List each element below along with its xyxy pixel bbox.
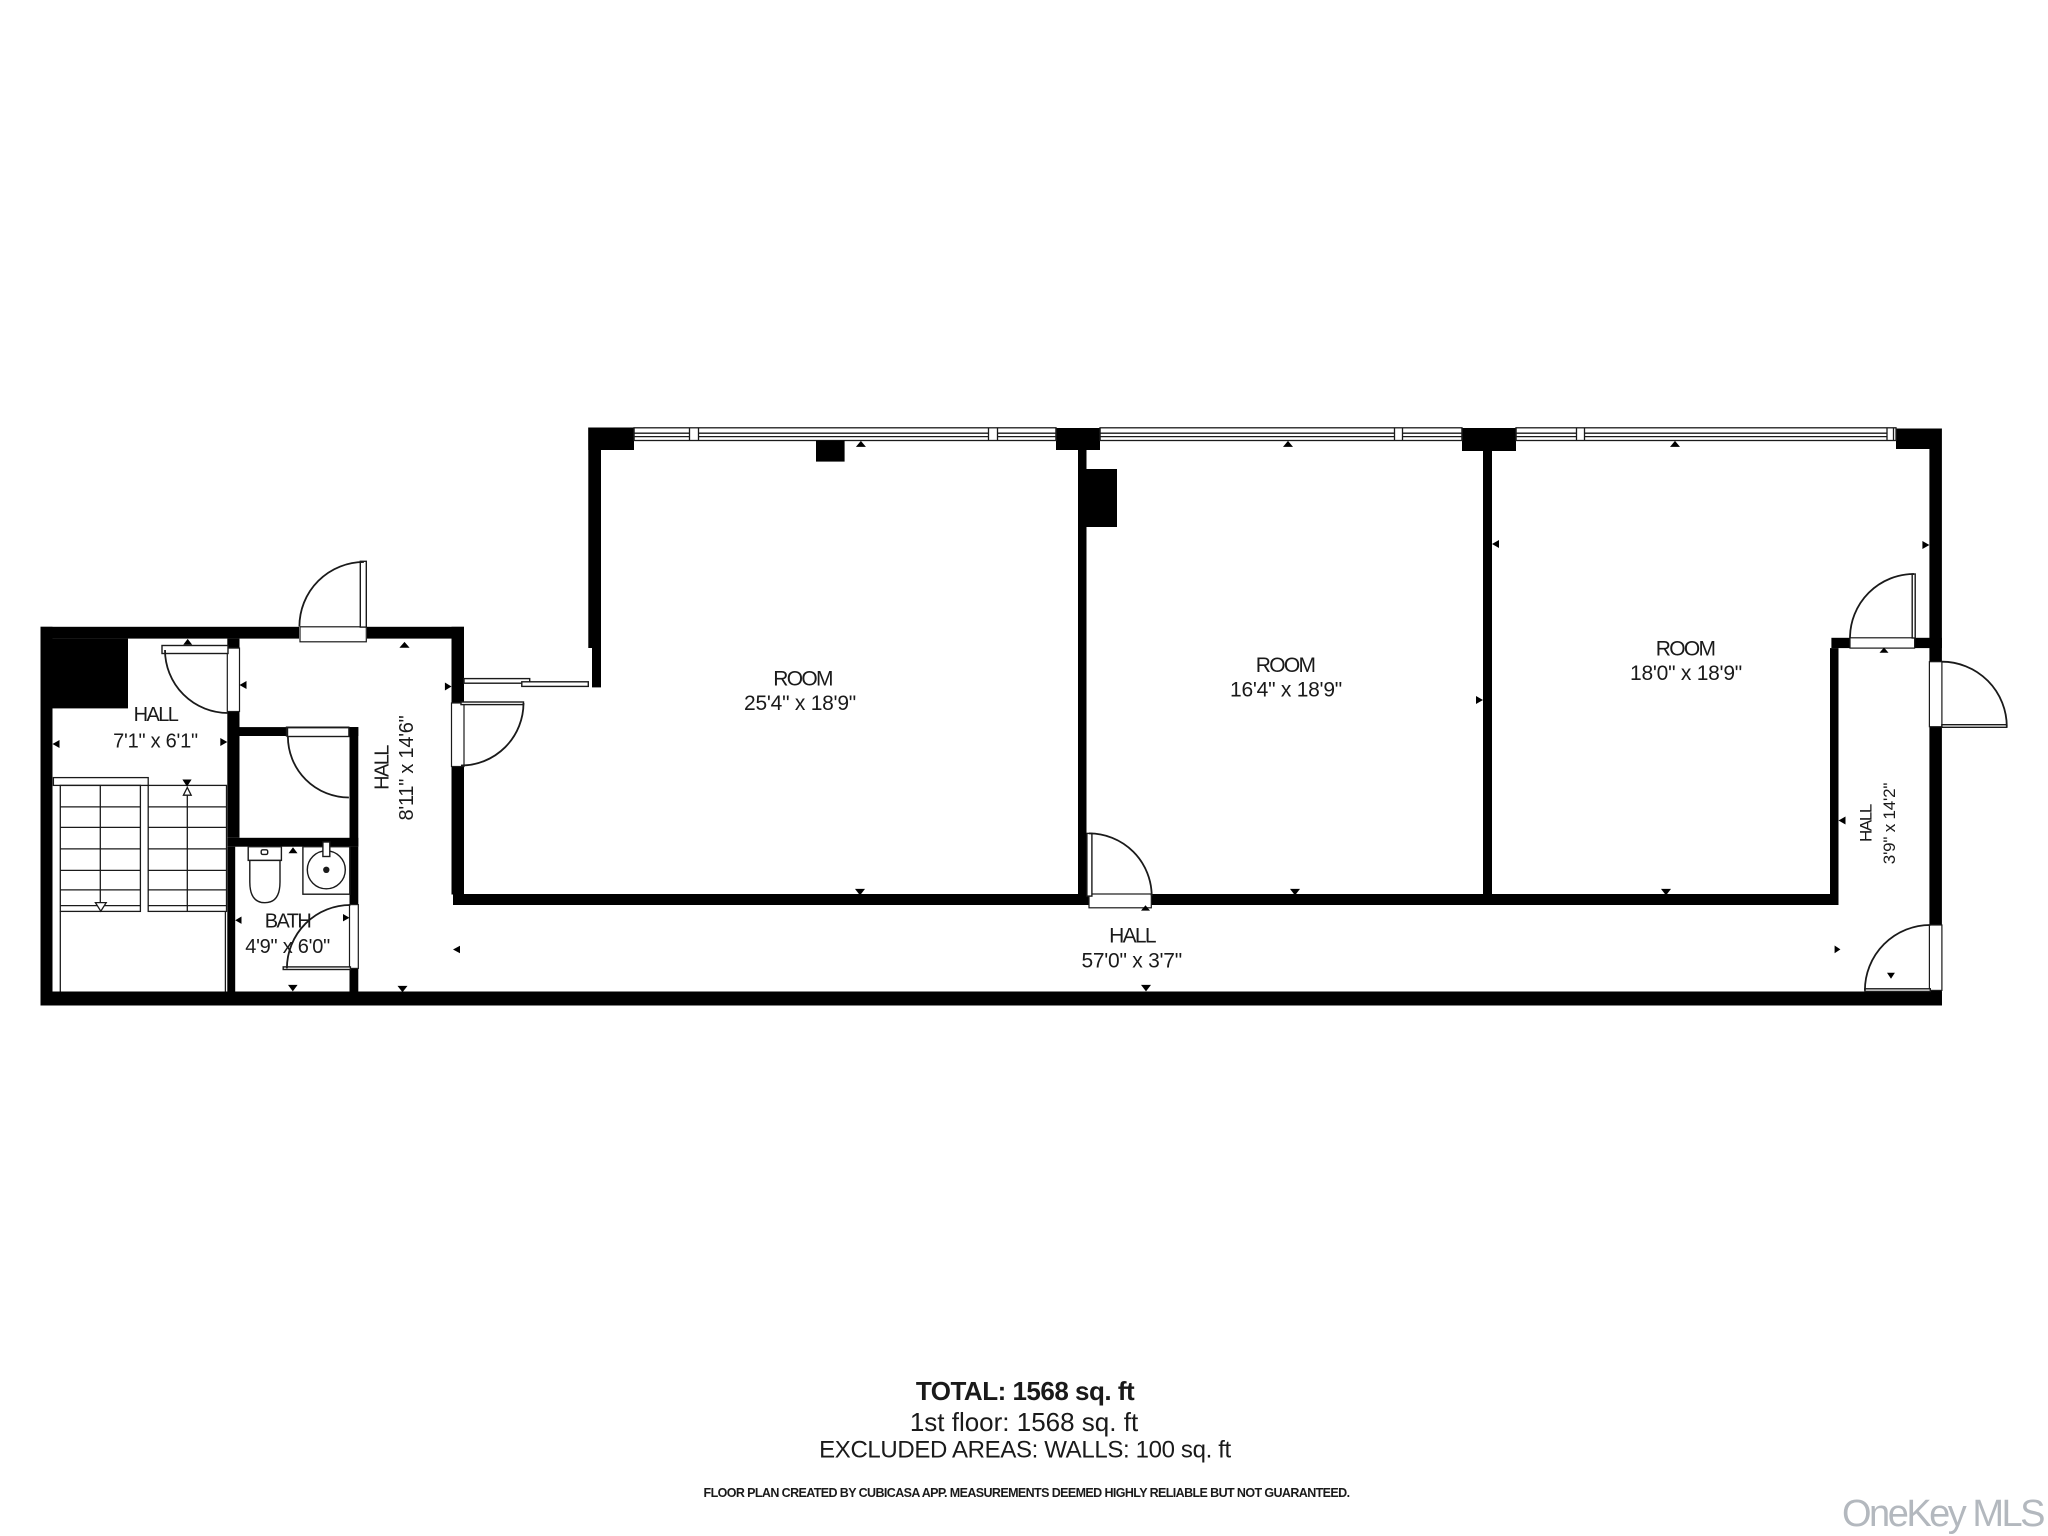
svg-text:3'9" x 14'2": 3'9" x 14'2" — [1880, 783, 1899, 865]
svg-text:BATH: BATH — [265, 910, 311, 932]
svg-text:HALL: HALL — [134, 704, 179, 726]
svg-text:ROOM: ROOM — [1656, 637, 1715, 660]
svg-text:25'4" x 18'9": 25'4" x 18'9" — [744, 692, 856, 715]
svg-text:FLOOR PLAN CREATED BY CUBICASA: FLOOR PLAN CREATED BY CUBICASA APP. MEAS… — [704, 1486, 1350, 1500]
svg-text:18'0" x 18'9": 18'0" x 18'9" — [1630, 662, 1742, 685]
svg-text:TOTAL: 1568 sq. ft: TOTAL: 1568 sq. ft — [916, 1376, 1135, 1406]
svg-text:OneKey MLS: OneKey MLS — [1842, 1493, 2044, 1535]
svg-text:4'9" x 6'0": 4'9" x 6'0" — [245, 936, 330, 958]
svg-text:57'0" x 3'7": 57'0" x 3'7" — [1081, 950, 1182, 973]
svg-text:EXCLUDED AREAS: WALLS: 100 sq.: EXCLUDED AREAS: WALLS: 100 sq. ft — [819, 1436, 1231, 1463]
svg-text:8'11" x 14'6": 8'11" x 14'6" — [396, 715, 418, 820]
svg-text:1st floor: 1568 sq. ft: 1st floor: 1568 sq. ft — [910, 1407, 1139, 1437]
svg-text:ROOM: ROOM — [773, 667, 832, 690]
svg-text:7'1" x 6'1": 7'1" x 6'1" — [113, 731, 198, 753]
svg-text:16'4" x 18'9": 16'4" x 18'9" — [1230, 678, 1342, 701]
svg-text:HALL: HALL — [1109, 925, 1156, 948]
svg-text:HALL: HALL — [371, 745, 393, 790]
svg-text:HALL: HALL — [1856, 804, 1875, 842]
svg-text:ROOM: ROOM — [1256, 654, 1315, 677]
